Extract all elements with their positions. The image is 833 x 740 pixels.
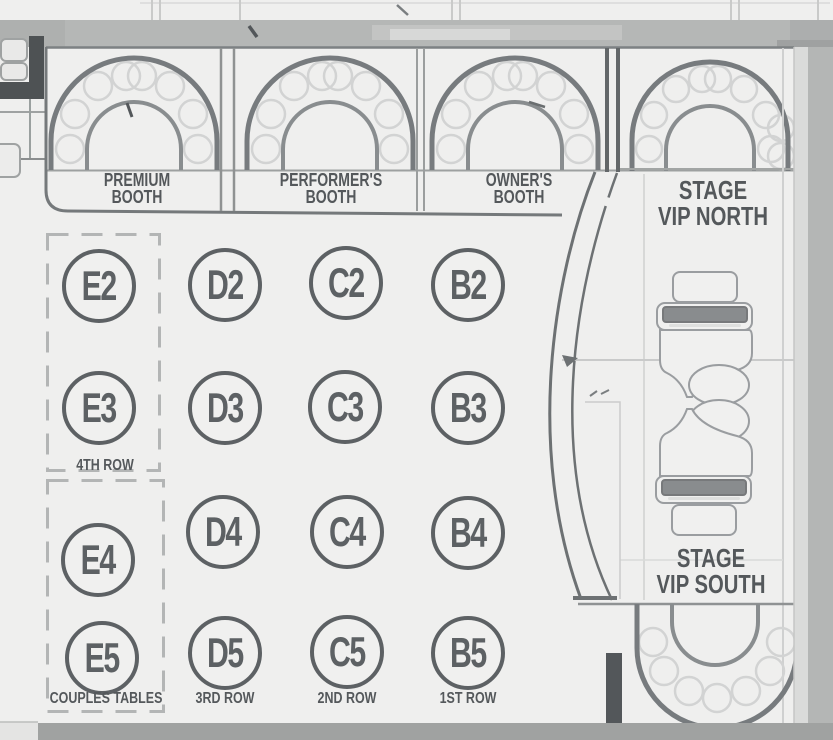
premium-booth-label: PREMIUM BOOTH (95, 172, 180, 206)
table-e4[interactable]: E4 (61, 523, 135, 597)
bottom-wall (38, 723, 833, 740)
left-fixtures (0, 36, 45, 177)
table-d3[interactable]: D3 (188, 371, 262, 445)
vip-table (672, 505, 736, 535)
owners-booth-label: OWNER'S BOOTH (476, 172, 561, 206)
vip-table (673, 272, 737, 302)
stage-edge (550, 172, 617, 600)
table-e3[interactable]: E3 (62, 371, 136, 445)
table-b2[interactable]: B2 (431, 248, 505, 322)
table-c2[interactable]: C2 (309, 246, 383, 320)
performers-booth[interactable] (247, 58, 413, 170)
premium-booth[interactable] (51, 58, 217, 170)
bottom-ledge (0, 722, 38, 740)
pillar (606, 653, 622, 729)
floor-plan: E2 D2 C2 B2 E3 D3 C3 B3 E4 D4 C4 B4 E5 D… (0, 0, 833, 740)
booth-seats (639, 628, 795, 712)
row-label-3rd: 3RD ROW (187, 691, 263, 707)
right-wall (808, 47, 833, 740)
table-b4[interactable]: B4 (431, 496, 505, 570)
table-b5[interactable]: B5 (431, 616, 505, 690)
table-c5[interactable]: C5 (310, 615, 384, 689)
top-wall (0, 20, 833, 48)
vip-north-furniture (657, 272, 752, 405)
table-e5[interactable]: E5 (65, 621, 139, 695)
row-label-1st: 1ST ROW (432, 691, 505, 707)
row-label-2nd: 2ND ROW (309, 691, 385, 707)
table-d4[interactable]: D4 (186, 495, 260, 569)
table-c3[interactable]: C3 (308, 370, 382, 444)
owners-booth[interactable] (432, 58, 598, 170)
sofa-back-bar (662, 480, 746, 495)
table-e2[interactable]: E2 (62, 249, 136, 323)
vip-north-label: STAGE VIP NORTH (642, 177, 783, 229)
sofa-back-bar (663, 307, 747, 322)
row-label-4th: 4TH ROW (68, 458, 142, 474)
row-label-couples: COUPLES TABLES (34, 691, 179, 707)
vip-south-furniture (656, 400, 752, 535)
table-d2[interactable]: D2 (188, 248, 262, 322)
top-structures (140, 0, 830, 21)
vip-north-booth[interactable] (632, 62, 794, 171)
table-d5[interactable]: D5 (188, 616, 262, 690)
table-b3[interactable]: B3 (431, 371, 505, 445)
vip-south-booth[interactable] (637, 604, 797, 728)
table-c4[interactable]: C4 (310, 495, 384, 569)
vip-south-label: STAGE VIP SOUTH (641, 545, 781, 597)
right-walkway (794, 47, 808, 723)
performers-booth-label: PERFORMER'S BOOTH (265, 172, 396, 206)
